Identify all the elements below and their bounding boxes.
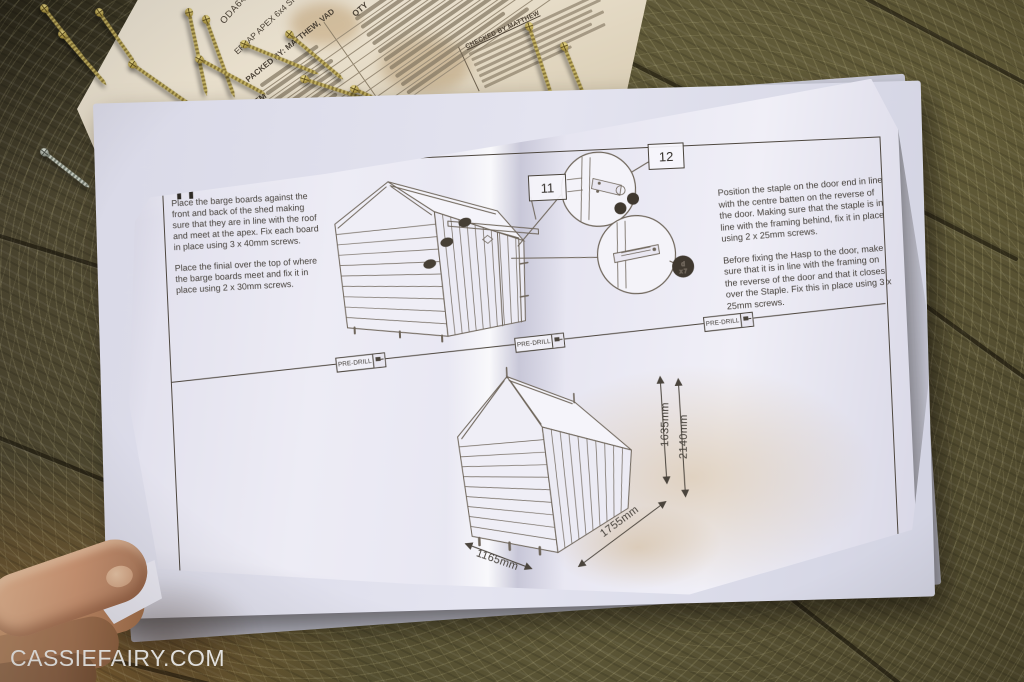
callout-number: 11 [540,180,554,196]
pre-drill-label: PRE-DRILL [704,314,741,331]
drill-icon [740,313,753,327]
plank-gap [784,592,913,682]
watermark-text: CASSIEFAIRY.COM [10,645,225,672]
page-border-frame: H Place the barge boards against the fro… [161,136,901,632]
detail-leader-line [516,194,564,246]
staple-badge-count: x 7 [680,269,688,275]
gold-screw [56,28,109,88]
staple-badge-letter: d [681,261,685,268]
callout-number: 12 [659,148,674,164]
plank-gap [914,296,1024,399]
dimension-label-ridge-height: 2140mm [678,403,690,471]
callout-box-12: 12 [648,142,685,170]
photo-scene: NG CHECK ODA6402NF ERLAP APEX 6x4 SH PAC… [0,0,1024,682]
dimension-label-eaves-height: 1635mm [659,390,671,458]
silver-screw [38,146,92,190]
pre-drill-label: PRE-DRILL [515,335,552,352]
drill-icon [551,334,564,348]
callout-box-11: 11 [528,174,567,202]
